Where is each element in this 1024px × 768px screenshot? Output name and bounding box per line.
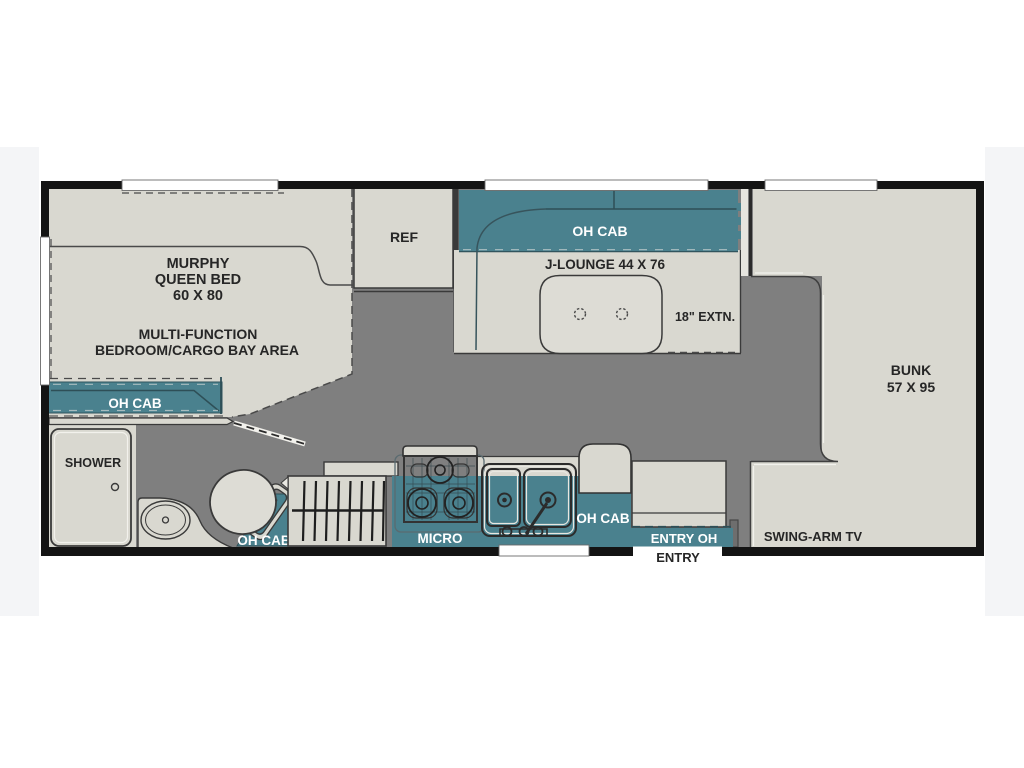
svg-text:BEDROOM/CARGO BAY AREA: BEDROOM/CARGO BAY AREA [95, 342, 299, 358]
svg-text:60 X 80: 60 X 80 [173, 288, 223, 304]
svg-text:QUEEN BED: QUEEN BED [155, 272, 241, 288]
svg-text:OH CAB: OH CAB [108, 396, 161, 411]
svg-text:MULTI-FUNCTION: MULTI-FUNCTION [139, 326, 258, 342]
svg-text:SWING-ARM TV: SWING-ARM TV [764, 529, 863, 544]
svg-text:57 X 95: 57 X 95 [887, 379, 935, 395]
svg-text:BUNK: BUNK [891, 362, 931, 378]
svg-text:OH CAB: OH CAB [576, 511, 629, 526]
svg-text:ENTRY OH: ENTRY OH [651, 531, 717, 546]
svg-text:MURPHY: MURPHY [167, 256, 230, 272]
svg-text:OH CAB: OH CAB [237, 533, 290, 548]
svg-text:REF: REF [390, 229, 418, 245]
svg-text:MICRO: MICRO [418, 531, 463, 546]
svg-text:18" EXTN.: 18" EXTN. [675, 310, 735, 324]
svg-text:OH CAB: OH CAB [572, 223, 627, 239]
svg-text:ENTRY: ENTRY [656, 550, 700, 565]
svg-text:J-LOUNGE 44 X 76: J-LOUNGE 44 X 76 [545, 257, 666, 272]
svg-text:SHOWER: SHOWER [65, 456, 121, 470]
